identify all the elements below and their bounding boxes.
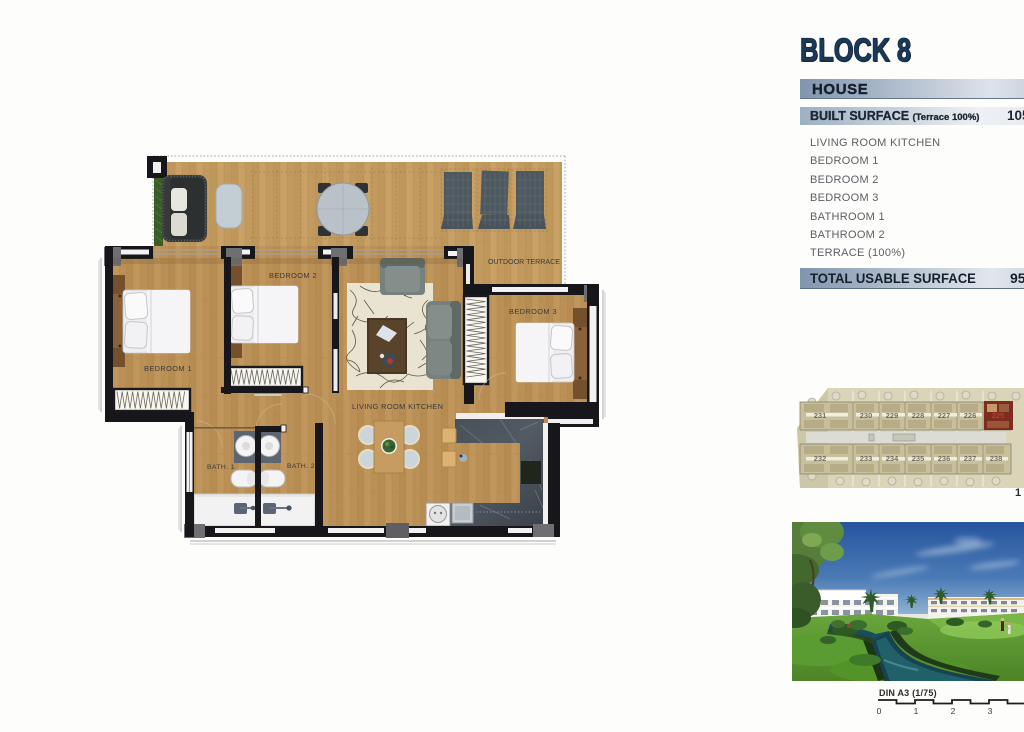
svg-text:233: 233 (860, 454, 873, 463)
svg-text:227: 227 (938, 411, 951, 420)
svg-text:231: 231 (814, 411, 827, 420)
svg-text:BEDROOM 2: BEDROOM 2 (269, 271, 317, 280)
svg-text:BATH. 2: BATH. 2 (287, 463, 315, 470)
svg-text:LIVING ROOM KITCHEN: LIVING ROOM KITCHEN (352, 402, 443, 411)
svg-text:3: 3 (988, 706, 993, 716)
svg-text:237: 237 (964, 454, 977, 463)
svg-text:BATH. 1: BATH. 1 (207, 464, 235, 471)
svg-text:BEDROOM 1: BEDROOM 1 (144, 364, 192, 373)
svg-text:235: 235 (912, 454, 925, 463)
svg-text:2: 2 (951, 706, 956, 716)
svg-text:226: 226 (964, 411, 977, 420)
svg-text:1: 1 (1015, 487, 1021, 499)
svg-text:228: 228 (912, 411, 925, 420)
svg-text:BEDROOM 3: BEDROOM 3 (509, 307, 557, 316)
svg-text:230: 230 (860, 411, 873, 420)
svg-text:234: 234 (886, 454, 899, 463)
svg-text:232: 232 (814, 454, 827, 463)
svg-text:0: 0 (877, 706, 882, 716)
svg-text:229: 229 (886, 411, 899, 420)
svg-text:1: 1 (914, 706, 919, 716)
svg-text:236: 236 (938, 454, 951, 463)
svg-text:238: 238 (990, 454, 1003, 463)
svg-text:OUTDOOR TERRACE: OUTDOOR TERRACE (488, 258, 560, 266)
svg-text:DIN A3 (1/75): DIN A3 (1/75) (879, 688, 937, 698)
svg-text:225: 225 (992, 411, 1005, 420)
